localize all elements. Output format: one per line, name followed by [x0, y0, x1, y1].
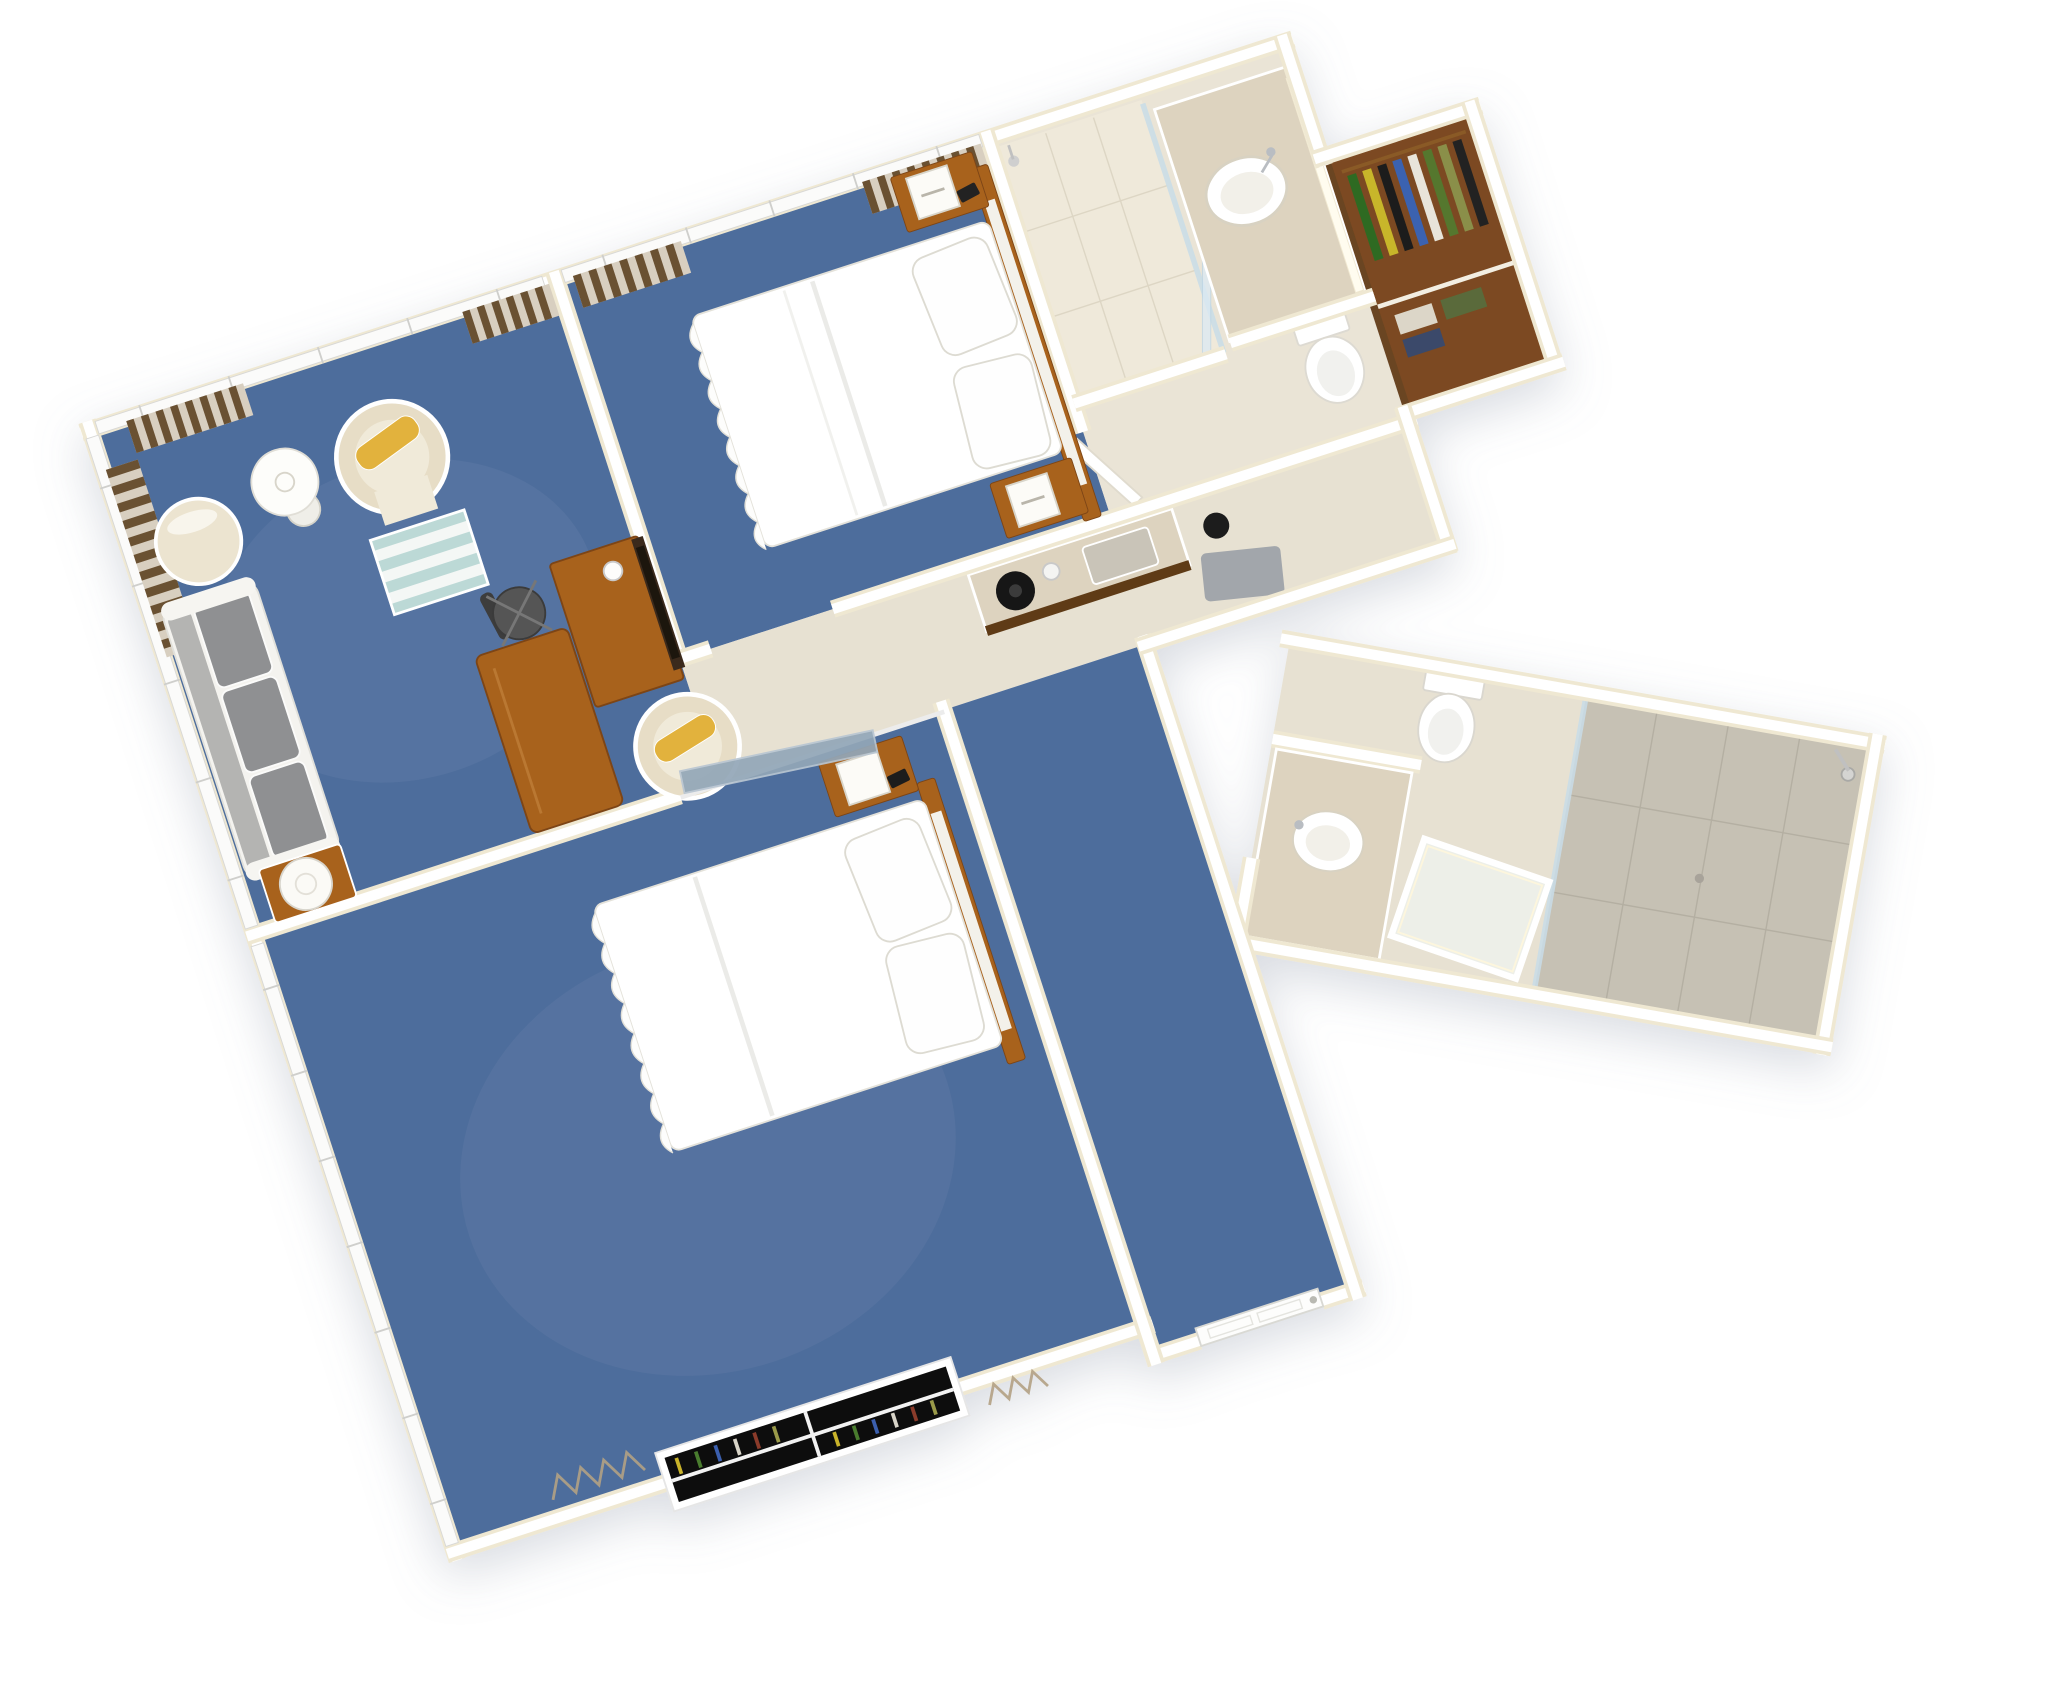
- scene-root: [78, 0, 1887, 1592]
- hotel-suite-3d-floorplan: [0, 0, 2048, 1702]
- floorplan-canvas: [0, 0, 2048, 1702]
- floor-mat: [1200, 546, 1285, 602]
- wing-bathroom-group: [1226, 629, 1887, 1056]
- wing-shower-floor: [1534, 698, 1869, 1039]
